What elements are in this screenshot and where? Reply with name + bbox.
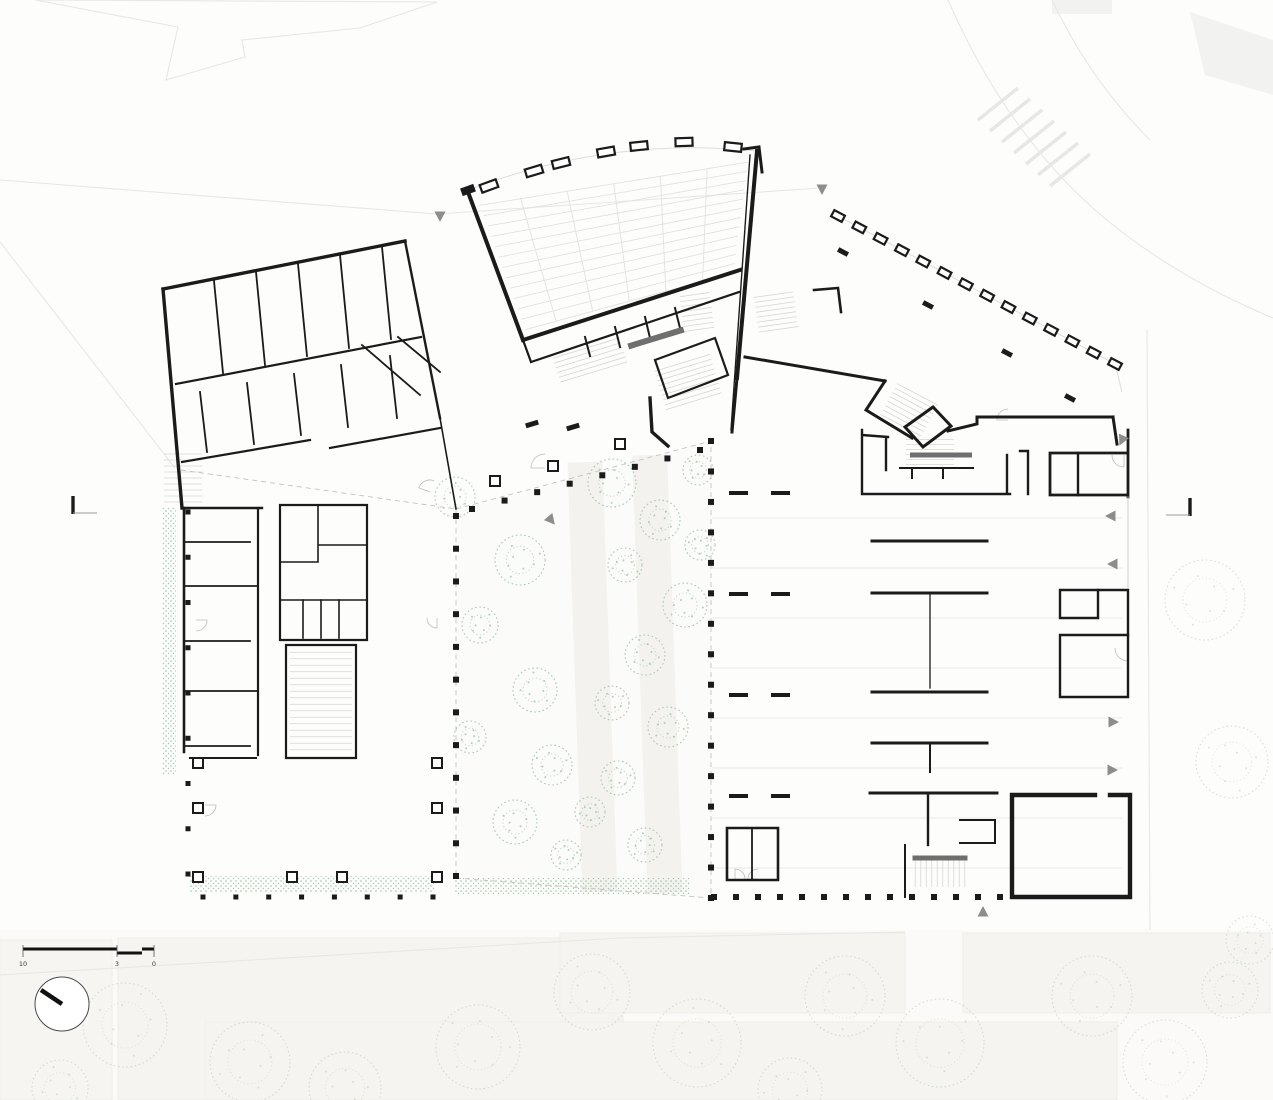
stair <box>915 859 965 887</box>
east-building <box>727 430 1130 897</box>
floor-plan-page: 10 3 0 <box>0 0 1273 1100</box>
floor-plan-drawing: 10 3 0 <box>0 0 1273 1100</box>
stair <box>553 338 627 382</box>
scale-label-3: 3 <box>115 960 119 968</box>
street-line <box>0 180 437 214</box>
party-wall-stubs <box>729 493 790 796</box>
section-marker-right <box>1166 498 1190 516</box>
canopy-lines <box>468 148 1122 392</box>
scale-label-10: 10 <box>19 960 27 968</box>
west-wing <box>163 241 440 508</box>
stair <box>290 652 352 750</box>
stair <box>680 293 715 332</box>
adjacent-building-ne <box>1190 12 1273 95</box>
auditorium-seating-rows <box>480 162 748 329</box>
scale-label-0: 0 <box>152 960 156 968</box>
section-marker-left <box>73 496 97 514</box>
entry-core <box>440 288 1117 509</box>
north-arrow <box>35 977 89 1031</box>
southwest-block <box>184 505 367 758</box>
crosswalk-hatch <box>978 88 1090 186</box>
adjacent-building-outline <box>35 0 437 80</box>
street-curve <box>1052 0 1150 140</box>
courtyard-paths <box>456 442 711 898</box>
stair <box>754 292 798 332</box>
